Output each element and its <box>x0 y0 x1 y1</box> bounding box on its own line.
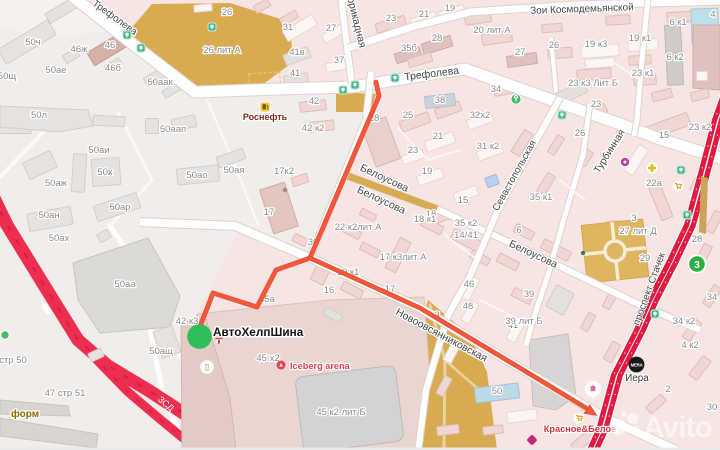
svg-text:50ае: 50ае <box>45 65 66 76</box>
svg-text:17 к3лит А: 17 к3лит А <box>380 252 427 263</box>
svg-text:42 к2: 42 к2 <box>302 123 325 134</box>
svg-text:46б: 46б <box>105 63 122 74</box>
svg-text:22а: 22а <box>646 178 663 189</box>
svg-text:23 к3 Лит Б: 23 к3 Лит Б <box>568 78 618 89</box>
svg-text:35 к1: 35 к1 <box>530 192 553 203</box>
svg-text:39: 39 <box>524 289 535 300</box>
svg-text:23: 23 <box>408 145 419 156</box>
svg-text:50аи: 50аи <box>88 145 109 156</box>
svg-text:Красное&Белое: Красное&Белое <box>544 424 617 434</box>
svg-text:31 к2: 31 к2 <box>477 141 500 152</box>
svg-text:19: 19 <box>445 3 456 14</box>
svg-text:4: 4 <box>710 9 715 20</box>
svg-text:41в: 41в <box>289 47 305 58</box>
svg-text:19: 19 <box>422 166 433 177</box>
svg-text:[]: [] <box>205 365 209 372</box>
svg-text:26: 26 <box>575 128 586 139</box>
svg-text:4 к2: 4 к2 <box>681 340 698 351</box>
svg-text:34: 34 <box>491 84 502 95</box>
svg-text:18 к1: 18 к1 <box>414 214 437 225</box>
svg-text:16: 16 <box>324 285 335 296</box>
svg-text:32х2: 32х2 <box>470 110 491 121</box>
svg-text:26: 26 <box>549 40 560 51</box>
svg-text:41: 41 <box>290 68 301 79</box>
svg-text:25: 25 <box>403 110 414 121</box>
svg-text:50х: 50х <box>97 167 113 178</box>
svg-text:50аа: 50аа <box>114 279 136 290</box>
svg-text:3: 3 <box>631 213 636 224</box>
svg-text:форм: форм <box>11 408 39 420</box>
svg-text:17: 17 <box>264 207 275 218</box>
svg-text:23 к2: 23 к2 <box>689 122 712 133</box>
svg-text:38: 38 <box>435 95 446 106</box>
svg-text:50ч: 50ч <box>25 37 41 48</box>
svg-text:23 к1: 23 к1 <box>632 68 655 79</box>
svg-text:Avito: Avito <box>643 411 713 444</box>
svg-text:21: 21 <box>419 9 430 20</box>
svg-text:50ар: 50ар <box>109 202 130 213</box>
svg-text:50ао: 50ао <box>186 170 207 181</box>
svg-text:22 к2лит А: 22 к2лит А <box>335 222 382 233</box>
svg-text:50щ: 50щ <box>0 71 16 82</box>
svg-text:23: 23 <box>591 99 602 110</box>
svg-text:Роснефть: Роснефть <box>243 112 288 122</box>
svg-text:50ах: 50ах <box>49 233 70 244</box>
svg-text:27: 27 <box>515 47 526 58</box>
svg-text:стр 50: стр 50 <box>0 355 27 366</box>
svg-text:31: 31 <box>283 22 294 33</box>
svg-text:50ан: 50ан <box>38 210 59 221</box>
svg-text:27 лит Д: 27 лит Д <box>619 226 657 237</box>
svg-text:17к2: 17к2 <box>274 166 294 177</box>
svg-text:Иера: Иера <box>625 373 649 384</box>
svg-text:50ащ: 50ащ <box>149 346 173 357</box>
svg-text:21: 21 <box>433 131 444 142</box>
svg-text:28: 28 <box>692 234 703 245</box>
svg-text:14/41: 14/41 <box>454 230 478 241</box>
svg-text:46ж: 46ж <box>71 44 89 55</box>
svg-text:45 к2 лит Б: 45 к2 лит Б <box>316 407 365 418</box>
svg-text:29: 29 <box>640 253 651 264</box>
svg-text:26: 26 <box>222 7 233 18</box>
svg-text:50: 50 <box>492 386 503 397</box>
svg-text:50аж: 50аж <box>45 178 68 189</box>
svg-text:15: 15 <box>458 195 469 206</box>
svg-text:6: 6 <box>516 225 521 236</box>
svg-text:АвтоХелпШина: АвтоХелпШина <box>213 325 304 339</box>
svg-text:28: 28 <box>432 33 443 44</box>
svg-text:47 стр 51: 47 стр 51 <box>45 388 86 399</box>
svg-text:35 к2: 35 к2 <box>455 218 478 229</box>
svg-text:37: 37 <box>334 55 345 66</box>
svg-text:48: 48 <box>463 301 474 312</box>
svg-text:34: 34 <box>707 292 718 303</box>
svg-text:45 х2: 45 х2 <box>256 353 279 364</box>
svg-text:2: 2 <box>665 384 670 395</box>
svg-text:Iceberg arena: Iceberg arena <box>290 361 351 371</box>
svg-text:39 лит Б: 39 лит Б <box>505 316 542 327</box>
svg-text:50л: 50л <box>31 110 47 121</box>
svg-text:50ая: 50ая <box>224 165 245 176</box>
svg-text:23: 23 <box>386 13 397 24</box>
svg-text:46: 46 <box>105 40 116 51</box>
svg-text:42: 42 <box>309 96 320 107</box>
svg-text:6 к1: 6 к1 <box>669 17 686 28</box>
svg-text:19 к3: 19 к3 <box>585 39 608 50</box>
svg-text:3: 3 <box>694 260 700 271</box>
svg-text:20 лит А: 20 лит А <box>473 25 511 36</box>
svg-text:34 к2: 34 к2 <box>673 316 696 327</box>
svg-text:50аап: 50аап <box>160 124 186 135</box>
svg-text:15: 15 <box>659 130 670 141</box>
svg-text:27: 27 <box>326 23 337 34</box>
svg-text:MERA: MERA <box>631 362 644 367</box>
svg-text:6 к2: 6 к2 <box>666 52 683 63</box>
svg-text:50аак: 50аак <box>147 77 173 88</box>
svg-text:19 к1: 19 к1 <box>629 33 652 44</box>
svg-text:46: 46 <box>464 279 475 290</box>
svg-text:35б: 35б <box>401 43 418 54</box>
svg-text:26 лит А: 26 лит А <box>203 45 241 56</box>
